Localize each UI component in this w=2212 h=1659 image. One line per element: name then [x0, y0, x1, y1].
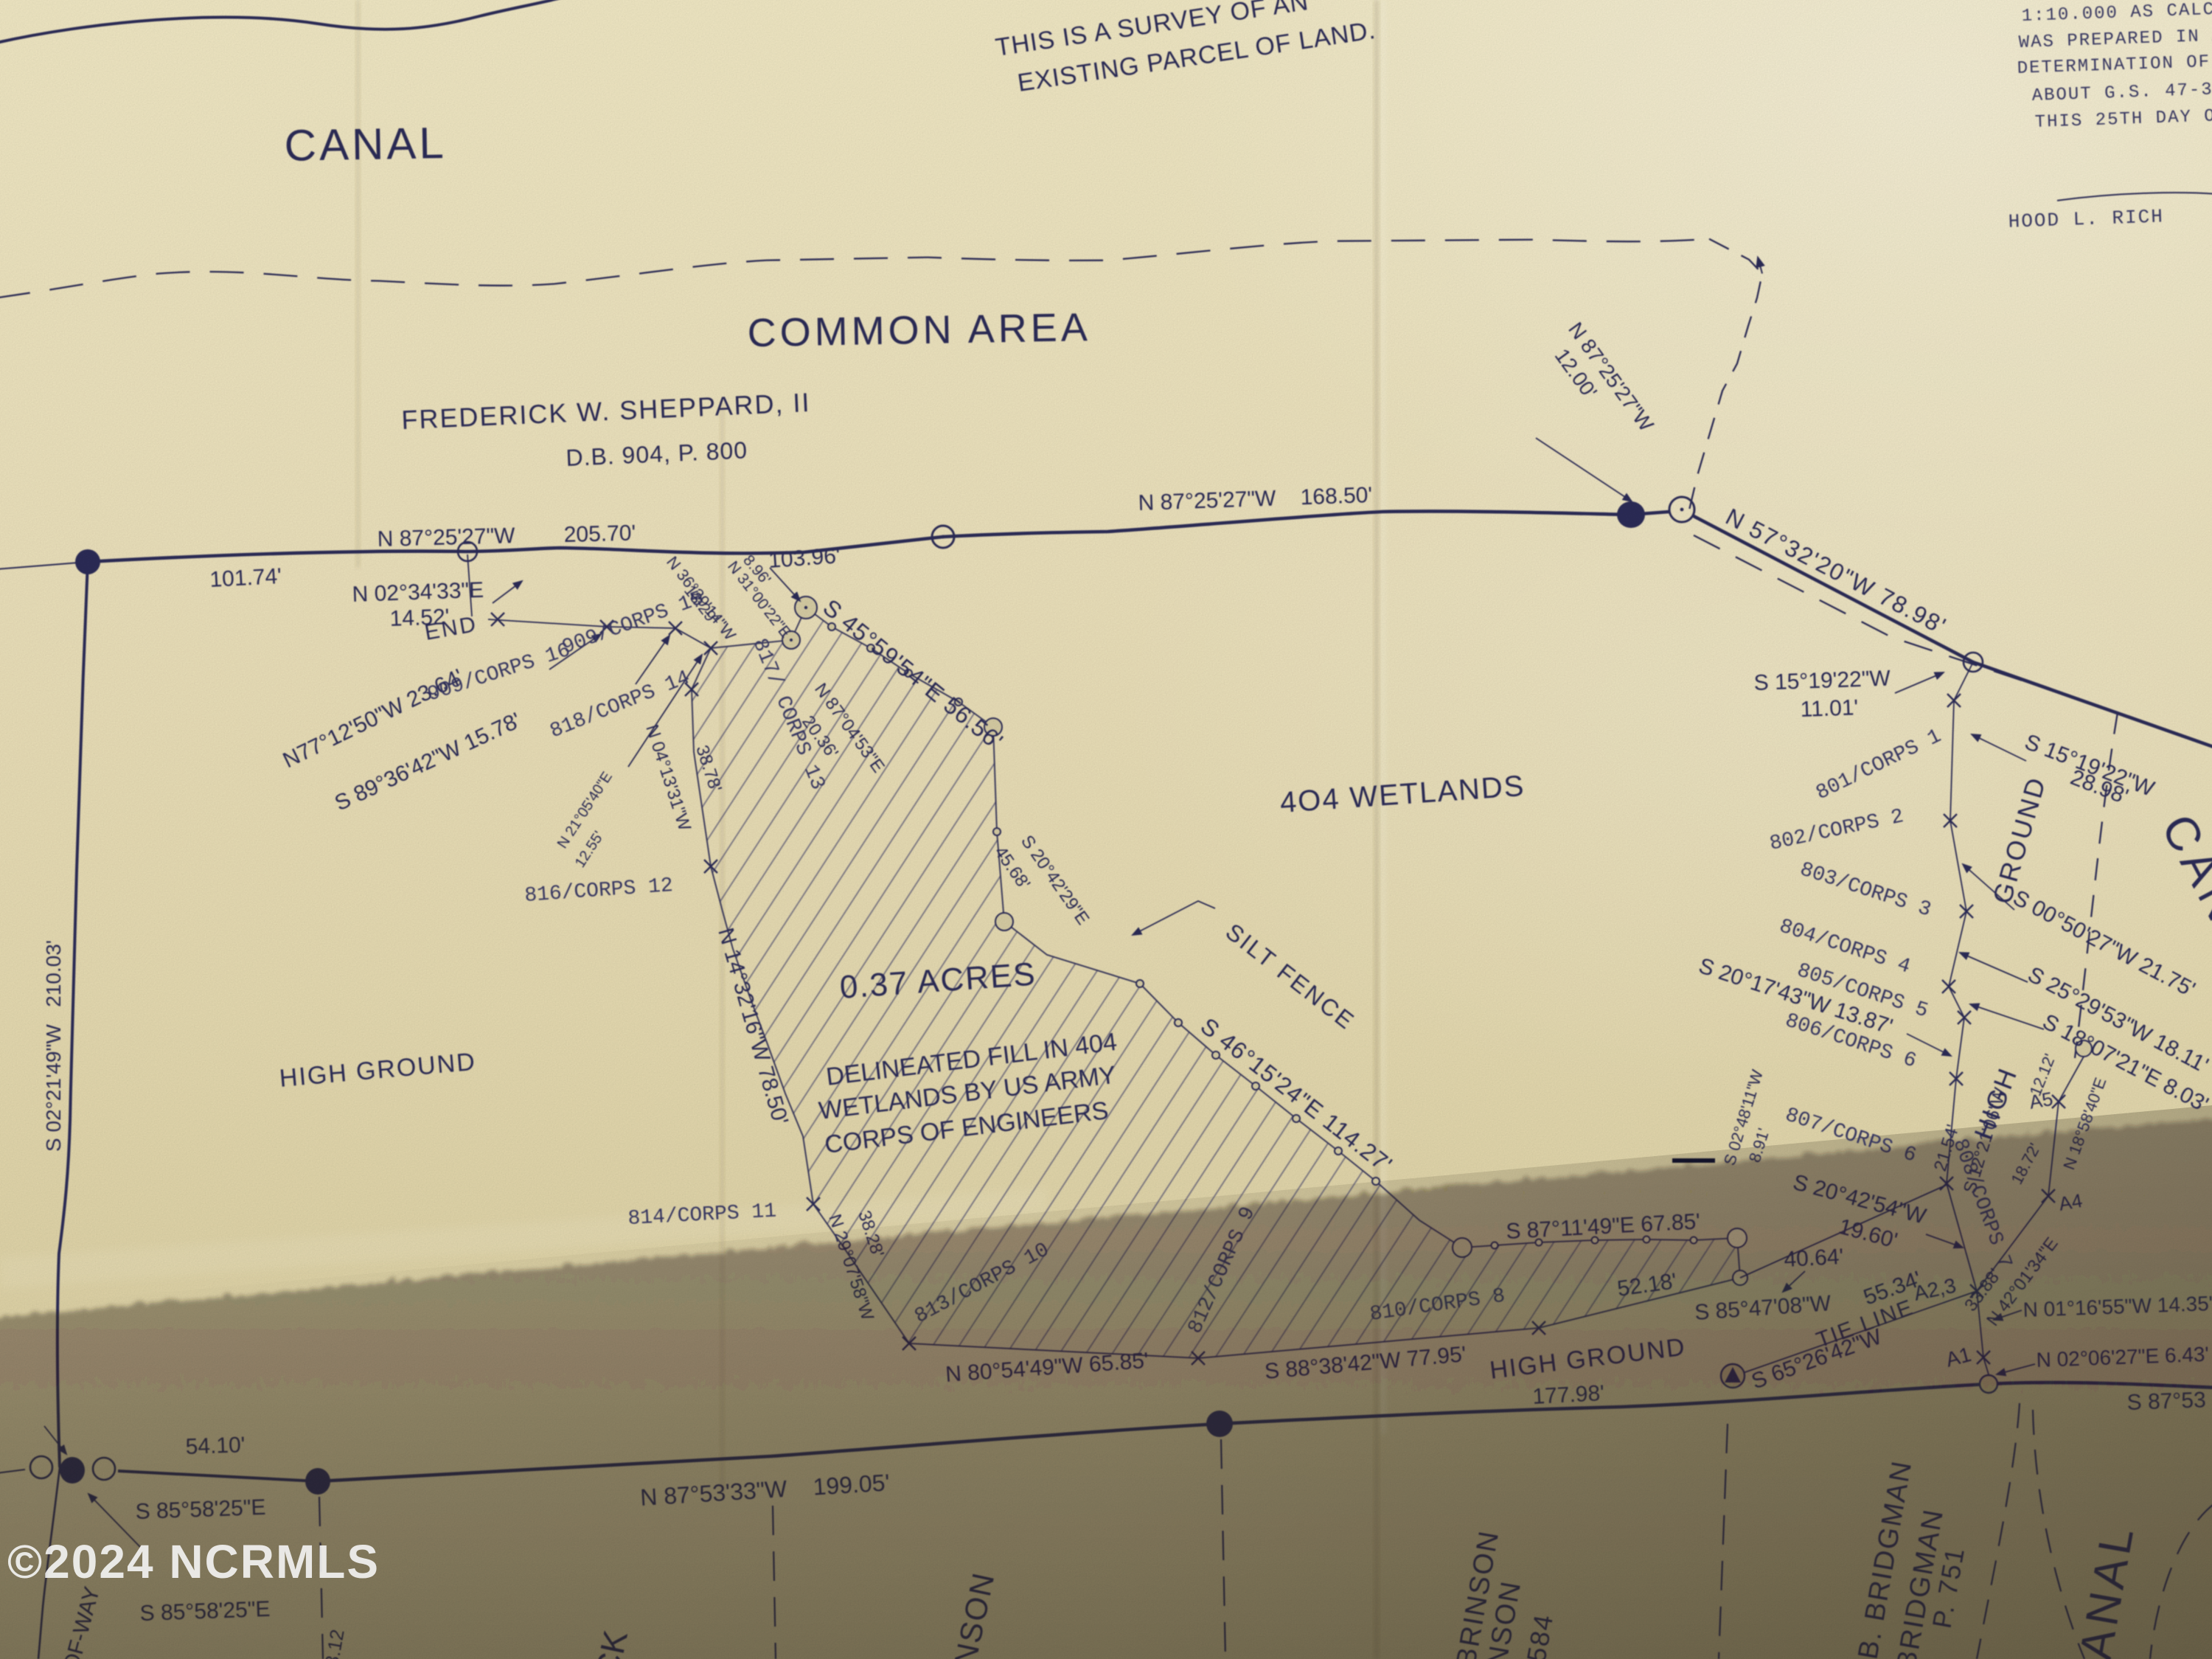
svg-text:©2024 NCRMLS: ©2024 NCRMLS: [7, 1535, 380, 1588]
